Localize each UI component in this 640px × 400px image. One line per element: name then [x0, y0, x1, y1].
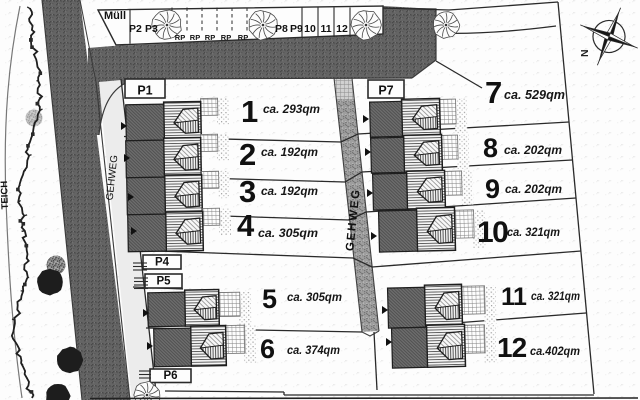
svg-text:11: 11	[501, 283, 527, 311]
svg-text:4: 4	[237, 208, 255, 243]
svg-text:12: 12	[336, 23, 348, 35]
svg-text:7: 7	[485, 75, 502, 110]
svg-text:P2: P2	[129, 23, 142, 35]
svg-text:P7: P7	[378, 84, 393, 98]
svg-text:ca. 293qm: ca. 293qm	[263, 102, 320, 116]
svg-text:6: 6	[260, 334, 275, 364]
svg-text:RP: RP	[190, 33, 200, 42]
svg-text:ca. 192qm: ca. 192qm	[261, 145, 318, 159]
svg-text:P5: P5	[156, 276, 171, 288]
svg-text:P8: P8	[275, 23, 288, 35]
svg-text:ca. 305qm: ca. 305qm	[258, 226, 318, 240]
svg-text:N: N	[579, 49, 591, 57]
svg-text:ca. 529qm: ca. 529qm	[504, 88, 565, 102]
svg-text:5: 5	[262, 284, 277, 314]
svg-text:11: 11	[320, 23, 331, 35]
svg-text:TEICH: TEICH	[0, 181, 11, 210]
svg-text:12: 12	[497, 332, 527, 363]
svg-text:ca. 374qm: ca. 374qm	[287, 343, 340, 357]
svg-text:ca. 192qm: ca. 192qm	[261, 184, 318, 198]
svg-text:ca. 202qm: ca. 202qm	[504, 143, 562, 157]
svg-text:RP: RP	[221, 33, 231, 42]
svg-text:P4: P4	[155, 257, 170, 269]
svg-text:P1: P1	[137, 84, 152, 98]
svg-text:9: 9	[485, 174, 500, 204]
svg-text:ca. 321qm: ca. 321qm	[507, 225, 560, 239]
svg-text:RP: RP	[205, 33, 215, 42]
svg-text:P9: P9	[290, 23, 303, 35]
svg-text:P3: P3	[145, 23, 158, 35]
svg-text:Müll: Müll	[104, 10, 126, 22]
svg-text:ca. 321qm: ca. 321qm	[531, 291, 580, 303]
svg-text:10: 10	[304, 23, 316, 35]
svg-text:2: 2	[239, 137, 256, 172]
svg-text:ca.402qm: ca.402qm	[530, 346, 580, 358]
svg-text:8: 8	[483, 133, 498, 163]
svg-text:1: 1	[241, 94, 258, 129]
svg-text:RP: RP	[175, 33, 185, 42]
svg-text:ca. 202qm: ca. 202qm	[505, 182, 562, 196]
svg-text:3: 3	[239, 174, 256, 209]
svg-text:RP: RP	[238, 33, 248, 42]
svg-text:P6: P6	[163, 370, 177, 382]
svg-text:ca. 305qm: ca. 305qm	[287, 290, 342, 304]
svg-text:10: 10	[477, 216, 508, 249]
